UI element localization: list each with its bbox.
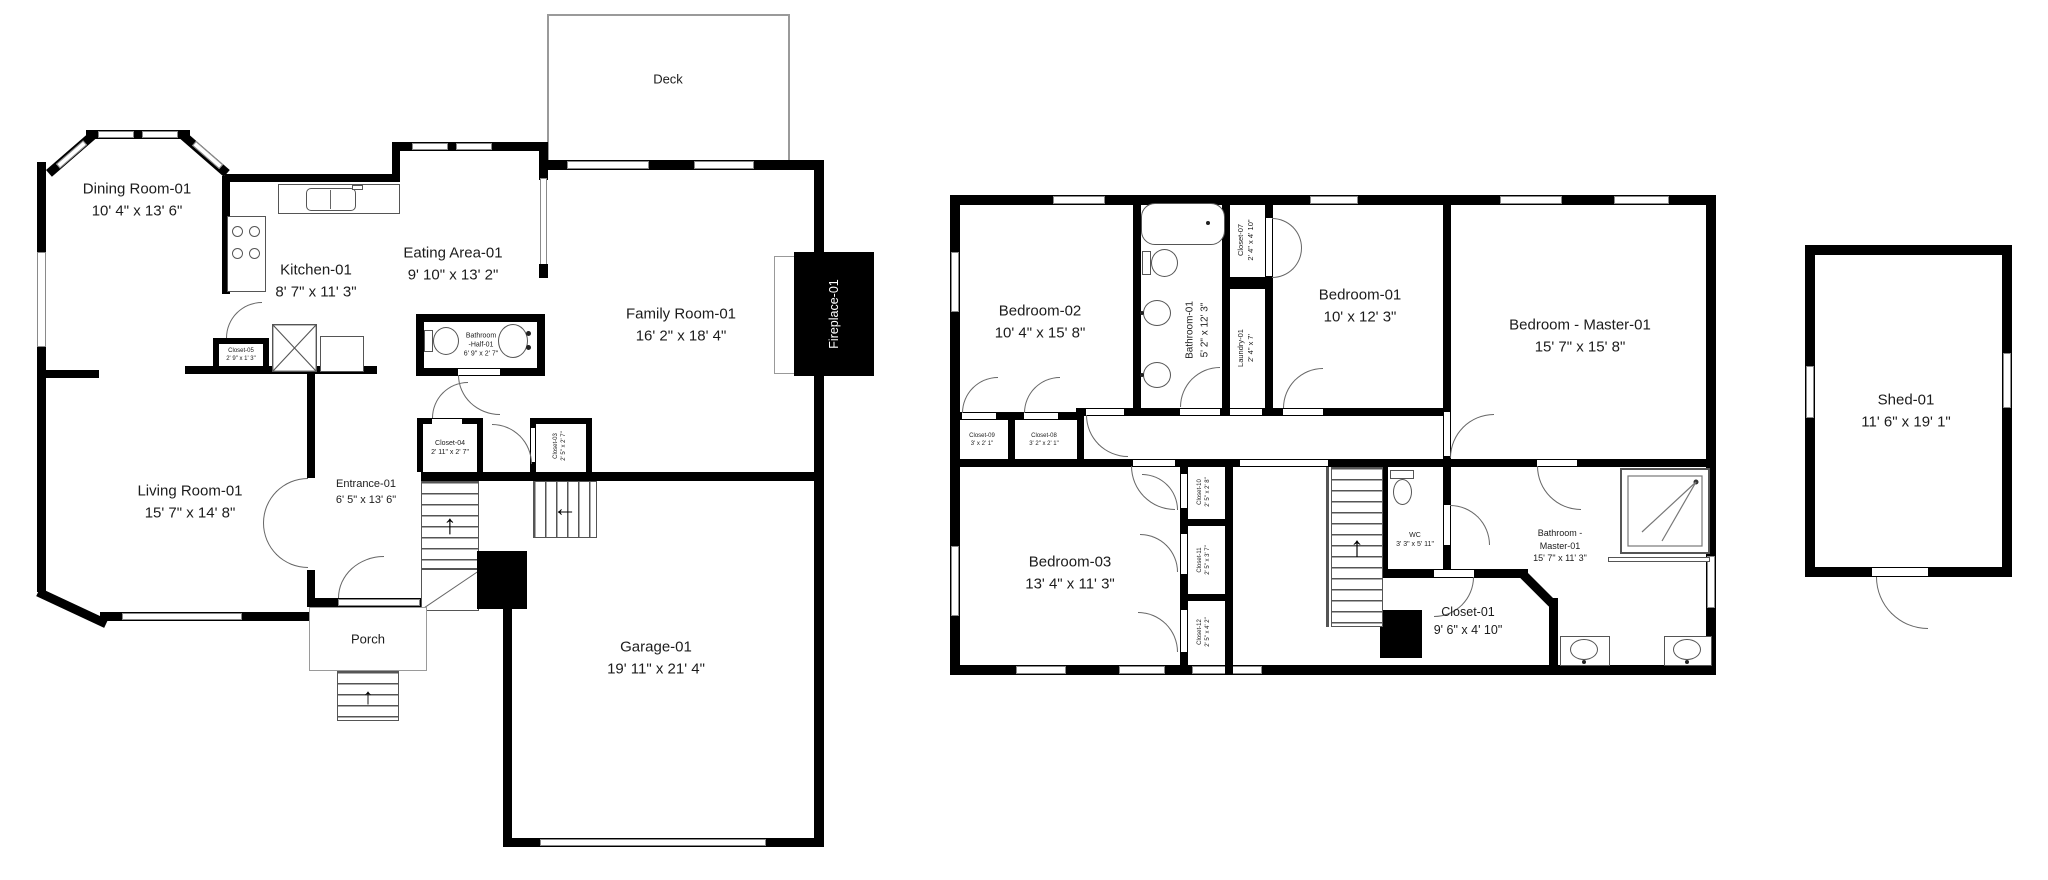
door-arc — [263, 523, 308, 568]
deck-door — [567, 161, 649, 169]
wall — [1549, 598, 1558, 668]
door-arc — [1180, 367, 1220, 407]
room-label-laundry: Laundry-012' 4" x 7' — [1236, 329, 1256, 367]
window — [456, 143, 492, 150]
door-opening — [1181, 474, 1187, 508]
wall — [417, 418, 423, 472]
fridge-icon — [320, 336, 364, 372]
room-label-closet-10: Closet-102' 5" x 2' 8" — [1197, 477, 1213, 507]
door-opening — [1181, 534, 1187, 574]
window — [56, 140, 87, 168]
room-label-shed: Shed-0111' 6" x 19' 1" — [1861, 389, 1951, 433]
wall — [225, 174, 400, 182]
door-arc — [1140, 534, 1178, 572]
wall — [1180, 594, 1233, 601]
toilet-tank-icon — [1390, 470, 1414, 479]
deck-door — [694, 161, 754, 169]
sink-icon — [1570, 639, 1598, 660]
chimney-block — [477, 551, 527, 609]
wall — [530, 418, 592, 424]
wall — [1225, 459, 1233, 675]
door-arc — [1024, 377, 1060, 413]
room-label-closet-08: Closet-083' 2" x 2' 1" — [1029, 433, 1059, 449]
window — [951, 546, 959, 616]
stair-rail — [1326, 467, 1329, 627]
wall — [539, 264, 548, 278]
burner-icon — [249, 248, 260, 259]
door-arc — [1283, 368, 1323, 408]
toilet-tank-icon — [424, 330, 433, 352]
room-label-fireplace: Fireplace-01 — [827, 279, 841, 348]
door-opening — [1180, 409, 1220, 415]
room-label-closet-12: Closet-122' 5" x 4' 2" — [1197, 617, 1213, 647]
window — [951, 252, 959, 312]
burner-icon — [249, 226, 260, 237]
sink-icon — [1143, 362, 1171, 388]
stairs-up-arrow: ↑ — [363, 686, 374, 708]
wall — [586, 418, 592, 472]
wall — [950, 459, 1716, 467]
sink-divider — [330, 190, 331, 209]
window — [142, 131, 178, 138]
wall — [1180, 519, 1233, 526]
room-label-half-bath: Bathroom -Half-01 6' 9" x 2' 7" — [464, 331, 499, 358]
room-label-closet-07: Closet-072' 4" x 4' 10" — [1236, 219, 1256, 260]
wall — [477, 418, 483, 472]
stairs-up-arrow: ↑ — [1350, 533, 1364, 561]
wall — [37, 347, 46, 592]
sink-icon — [1143, 300, 1171, 326]
window — [1016, 666, 1066, 674]
window — [1707, 556, 1715, 608]
door-opening — [1434, 570, 1474, 577]
room-label-bathroom-01: Bathroom-015' 2" x 12' 3" — [1184, 301, 1213, 359]
door-opening — [1181, 610, 1187, 652]
bathtub-icon — [1141, 203, 1225, 245]
stairs-up-arrow: ↑ — [443, 512, 457, 539]
front-door-opening — [338, 599, 420, 606]
door-opening — [307, 478, 315, 570]
sink-icon — [498, 324, 528, 358]
wall — [503, 606, 512, 847]
wall — [1076, 408, 1449, 416]
room-label-master-bath: Bathroom - Master-01 15' 7" x 11' 3" — [1533, 527, 1587, 565]
wall — [213, 338, 269, 344]
door-arc — [338, 556, 384, 598]
wall — [213, 338, 219, 372]
door-opening — [1230, 409, 1262, 415]
faucet-icon — [1140, 373, 1144, 377]
wall — [263, 338, 269, 372]
room-label-wc: WC3' 3" x 5' 11" — [1396, 531, 1434, 549]
wall — [416, 314, 424, 376]
room-label-master-bedroom: Bedroom - Master-0115' 7" x 15' 8" — [1509, 314, 1651, 358]
window — [540, 178, 547, 266]
room-label-entrance: Entrance-016' 5" x 13' 6" — [336, 477, 396, 509]
stair-opening — [1240, 460, 1328, 466]
door-opening — [1024, 413, 1058, 419]
room-label-closet-09: Closet-093' x 2' 1" — [969, 433, 995, 449]
room-label-bedroom-03: Bedroom-0313' 4" x 11' 3" — [1025, 551, 1115, 595]
wall — [2002, 245, 2012, 577]
faucet-icon — [526, 345, 531, 350]
window — [412, 143, 448, 150]
door-opening — [531, 428, 535, 462]
faucet-icon — [1140, 311, 1144, 315]
deck-label: Deck — [653, 71, 683, 90]
towel-bar — [1608, 557, 1710, 562]
room-label-dining: Dining Room-0110' 4" x 13' 6" — [83, 178, 191, 222]
room-label-bedroom-01: Bedroom-0110' x 12' 3" — [1319, 284, 1402, 328]
faucet-icon — [1685, 660, 1689, 664]
door-arc — [263, 478, 308, 523]
door-arc — [1537, 466, 1581, 510]
shower-icon — [1620, 468, 1710, 554]
window — [1806, 366, 1814, 418]
wall — [1133, 195, 1141, 412]
window — [37, 252, 46, 347]
door-arc — [1272, 248, 1302, 278]
porch-label: Porch — [351, 631, 385, 650]
door-opening — [432, 419, 462, 424]
window — [1614, 196, 1669, 204]
room-label-closet-01: Closet-019' 6" x 4' 10" — [1434, 603, 1503, 639]
room-label-closet-04: Closet-042' 11" x 2' 7" — [431, 439, 469, 457]
garage-door — [540, 839, 766, 846]
room-label-family: Family Room-0116' 2" x 18' 4" — [626, 303, 736, 347]
door-opening — [1444, 412, 1450, 456]
door-arc — [1138, 612, 1178, 652]
door-opening — [1872, 568, 1928, 576]
window — [192, 141, 223, 169]
window — [2003, 353, 2011, 408]
wall — [1222, 277, 1273, 289]
window — [1053, 196, 1105, 204]
room-label-bedroom-02: Bedroom-0210' 4" x 15' 8" — [995, 300, 1086, 344]
door-arc — [1272, 218, 1302, 248]
faucet-icon — [352, 185, 363, 190]
wall — [37, 370, 99, 378]
window — [1310, 196, 1358, 204]
door-opening — [962, 413, 996, 419]
toilet-bowl-icon — [1393, 479, 1412, 505]
faucet-icon — [1582, 660, 1586, 664]
wall — [421, 472, 824, 481]
wall — [416, 314, 545, 322]
toilet-tank-icon — [1142, 251, 1151, 275]
door-arc — [1086, 415, 1128, 457]
wall — [1077, 412, 1084, 467]
wall — [36, 588, 108, 628]
wall — [37, 162, 46, 252]
deck-outline — [547, 14, 790, 166]
pantry-cabinet-icon — [272, 324, 317, 372]
room-label-living: Living Room-0115' 7" x 14' 8" — [137, 480, 242, 524]
faucet-icon — [526, 331, 531, 336]
door-arc — [1450, 414, 1494, 458]
hearth — [774, 256, 796, 374]
door-arc — [962, 377, 998, 413]
sink-icon — [1673, 639, 1701, 660]
door-arc — [226, 302, 262, 338]
wall — [537, 314, 545, 376]
door-arc — [492, 424, 532, 464]
window — [1500, 196, 1562, 204]
toilet-bowl-icon — [433, 327, 459, 355]
burner-icon — [232, 248, 243, 259]
room-label-eating: Eating Area-019' 10" x 13' 2" — [403, 242, 502, 286]
room-label-kitchen: Kitchen-018' 7" x 11' 3" — [275, 259, 356, 303]
room-label-closet-05: Closet-052' 9" x 1' 3" — [226, 348, 256, 364]
window — [98, 131, 134, 138]
window — [122, 613, 242, 620]
tub-drain — [1206, 221, 1210, 225]
wall — [1805, 245, 2012, 255]
door-arc — [1876, 577, 1928, 629]
room-label-closet-11: Closet-112' 5" x 3' 7" — [1197, 545, 1213, 575]
door-arc — [432, 382, 468, 418]
room-label-garage: Garage-0119' 11" x 21' 4" — [607, 636, 705, 680]
toilet-bowl-icon — [1151, 249, 1178, 277]
door-opening — [1283, 409, 1323, 415]
wall — [1008, 412, 1015, 467]
stairs-left-arrow: ← — [553, 497, 577, 521]
floor-plan-canvas: Deck — [0, 0, 2048, 880]
window — [1119, 666, 1165, 674]
chimney-block — [1380, 610, 1422, 658]
room-label-closet-03: Closet-032' 5" x 2' 7" — [553, 431, 569, 461]
burner-icon — [232, 226, 243, 237]
door-arc — [1450, 505, 1490, 545]
